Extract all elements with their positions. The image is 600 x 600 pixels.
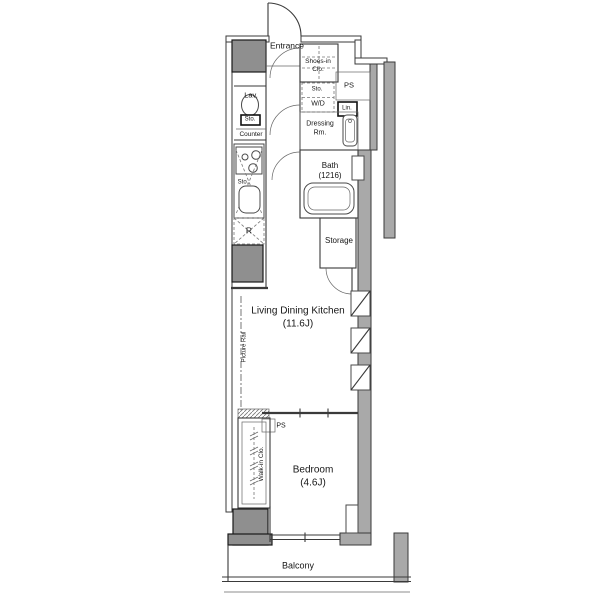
wall-pilaster xyxy=(346,505,358,533)
column-bottom-foot xyxy=(228,534,272,545)
bath-window xyxy=(352,156,364,180)
floor-plan-drawing xyxy=(0,0,600,600)
label-bath: Bath (1216) xyxy=(318,161,341,181)
window-symbol xyxy=(351,365,370,390)
top-step-wall2 xyxy=(355,58,387,64)
label-ps-upper: PS xyxy=(344,80,354,89)
label-balcony: Balcony xyxy=(282,560,314,571)
hall-door-arcs xyxy=(270,48,300,180)
right-wall-upper xyxy=(384,62,395,238)
sink-fixture xyxy=(239,186,260,213)
right-wall-inner-upper xyxy=(370,64,377,150)
label-lavatory: Lav. xyxy=(244,90,258,99)
floorplan-page: Entrance Shoes-in Clo. PS Sto. W/D Lin. … xyxy=(0,0,600,600)
label-sto-toilet: Sto. xyxy=(245,116,256,124)
storage-door-arc xyxy=(326,268,352,294)
label-linen: Lin. xyxy=(342,105,352,113)
left-wall xyxy=(226,36,232,512)
balcony-railing xyxy=(222,577,411,582)
label-living-dining-kitchen: Living Dining Kitchen (11.6J) xyxy=(251,306,344,331)
label-picture-rail: Picture Rail xyxy=(241,332,249,363)
bathtub-fixture xyxy=(304,183,354,214)
label-sto-wd: Sto. xyxy=(312,86,323,94)
column-top-left xyxy=(232,40,266,72)
sliding-window xyxy=(270,533,340,543)
top-wall-right xyxy=(301,36,361,42)
window-symbol xyxy=(351,328,370,353)
label-refrigerator: R xyxy=(246,226,252,237)
label-sto-kitchen: Sto. xyxy=(238,179,249,187)
column-mid-left xyxy=(232,245,263,282)
label-counter: Counter xyxy=(239,131,262,139)
balcony-right-wall xyxy=(394,533,408,582)
label-bedroom: Bedroom (4.6J) xyxy=(293,465,334,490)
label-storage: Storage xyxy=(325,236,353,246)
label-washer-dryer: W/D xyxy=(311,101,325,110)
label-entrance: Entrance xyxy=(270,41,304,52)
label-ps-lower: PS xyxy=(276,423,285,432)
entrance-door-arc xyxy=(268,3,301,36)
label-walk-in-closet: Walk-in Clo. xyxy=(258,447,266,482)
pipe-space-lower-box xyxy=(262,419,275,432)
label-dressing-room: Dressing Rm. xyxy=(306,120,334,138)
bedroom-bottom-wall xyxy=(340,533,371,545)
washbasin-fixture xyxy=(343,115,357,146)
window-symbol xyxy=(351,291,370,316)
label-shoes-in-closet: Shoes-in Clo. xyxy=(305,58,331,74)
